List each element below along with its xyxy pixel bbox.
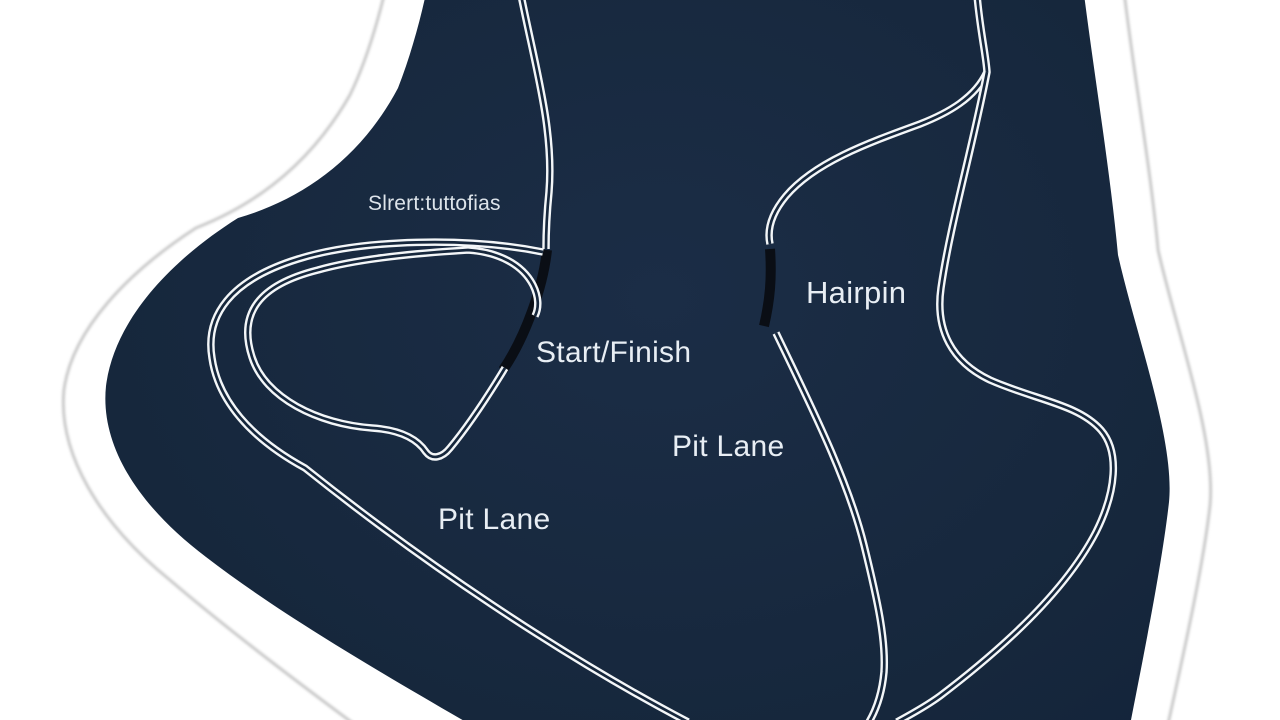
watermark-label: Slrert:tuttofias [368, 192, 501, 216]
track-sticker-image: Slrert:tuttofias Start/Finish Hairpin Pi… [0, 0, 1280, 720]
pit-lane-label-right: Pit Lane [672, 430, 784, 464]
start-finish-label: Start/Finish [536, 336, 691, 370]
pit-lane-label-left: Pit Lane [438, 503, 550, 537]
hairpin-label: Hairpin [806, 275, 906, 311]
